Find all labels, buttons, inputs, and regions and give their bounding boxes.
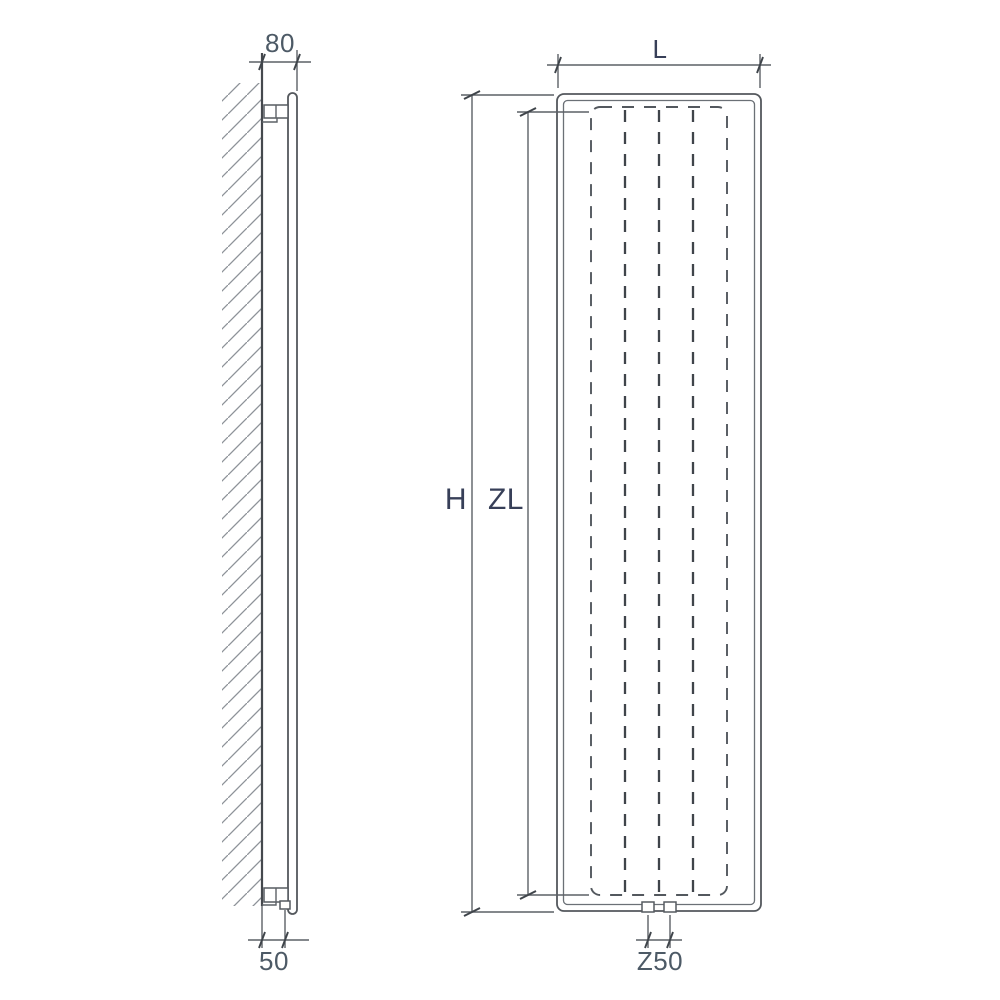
radiator-front-outer [557, 94, 761, 911]
dimension-L: L [547, 34, 771, 88]
dim-80-label: 80 [265, 28, 295, 58]
connection-stub-right [664, 902, 676, 912]
dimension-Z50: Z50 [636, 915, 683, 976]
connection-stub-left [642, 902, 654, 912]
dim-L-label: L [653, 34, 668, 64]
bracket-bottom [262, 888, 290, 909]
radiator-side-profile [288, 93, 297, 914]
front-view: L H ZL Z50 [445, 34, 771, 976]
wall-hatch [222, 83, 262, 906]
dim-50-label: 50 [259, 946, 289, 976]
dim-ZL-label: ZL [488, 483, 524, 516]
dim-H-label: H [445, 483, 467, 516]
dimension-50: 50 [248, 906, 309, 976]
side-pipe-stub [280, 901, 290, 909]
side-view: 80 50 [222, 28, 311, 976]
dim-Z50-label: Z50 [637, 946, 683, 976]
radiator-drawing-canvas: 80 50 [0, 0, 1000, 1000]
bracket-top [262, 105, 288, 122]
dimension-80: 80 [249, 28, 311, 91]
technical-drawing: 80 50 [0, 0, 1000, 1000]
